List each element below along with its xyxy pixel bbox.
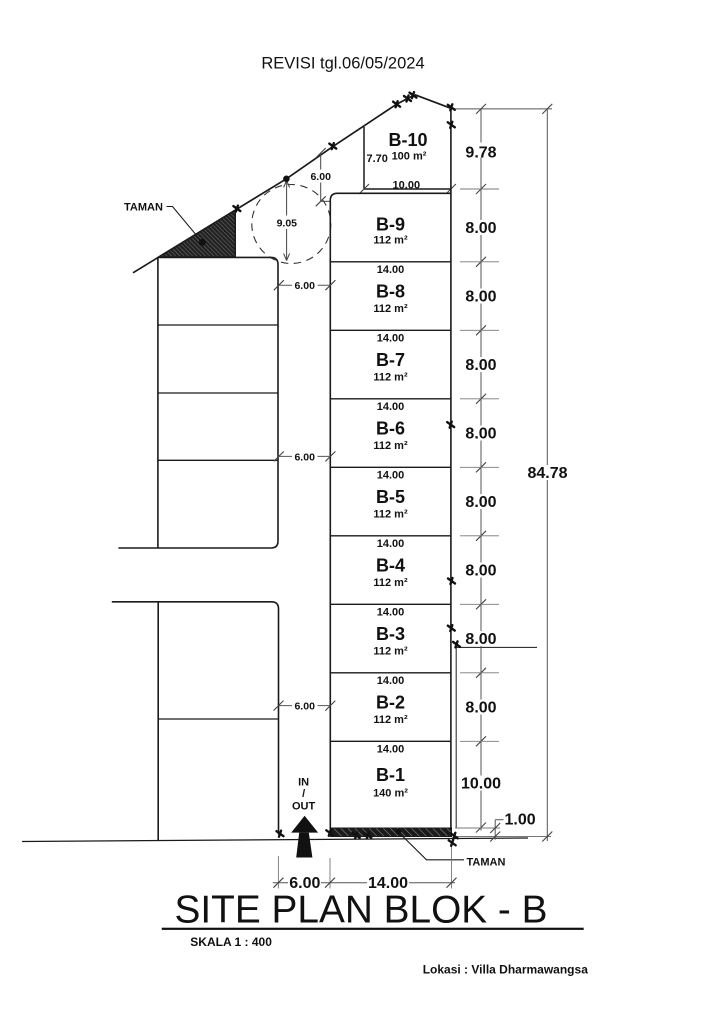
- svg-text:B-4: B-4: [376, 555, 405, 575]
- svg-text:6.00: 6.00: [310, 171, 331, 183]
- svg-text:9.78: 9.78: [465, 145, 496, 162]
- svg-text:TAMAN: TAMAN: [467, 857, 506, 869]
- svg-text:9.05: 9.05: [277, 218, 298, 230]
- svg-text:B-2: B-2: [376, 692, 405, 712]
- svg-text:112 m²: 112 m²: [373, 714, 408, 726]
- svg-text:REVISI tgl.06/05/2024: REVISI tgl.06/05/2024: [261, 55, 424, 73]
- svg-text:6.00: 6.00: [294, 701, 315, 713]
- svg-text:OUT: OUT: [292, 801, 316, 813]
- svg-text:TAMAN: TAMAN: [124, 202, 163, 214]
- svg-text:7.70: 7.70: [367, 153, 388, 165]
- svg-text:8.00: 8.00: [465, 494, 496, 511]
- svg-text:14.00: 14.00: [377, 469, 405, 481]
- svg-text:100 m²: 100 m²: [392, 151, 427, 163]
- svg-text:14.00: 14.00: [377, 606, 405, 618]
- svg-text:10.00: 10.00: [393, 179, 421, 191]
- svg-text:14.00: 14.00: [377, 675, 405, 687]
- svg-text:B-9: B-9: [376, 215, 405, 235]
- svg-text:8.00: 8.00: [465, 289, 496, 306]
- svg-text:B-8: B-8: [376, 281, 405, 301]
- svg-text:B-1: B-1: [376, 765, 405, 785]
- svg-text:112 m²: 112 m²: [373, 372, 408, 384]
- svg-text:6.00: 6.00: [294, 451, 315, 463]
- svg-text:140 m²: 140 m²: [373, 788, 408, 800]
- svg-text:14.00: 14.00: [377, 401, 405, 413]
- svg-text:112 m²: 112 m²: [373, 303, 408, 315]
- svg-text:8.00: 8.00: [465, 357, 496, 374]
- svg-text:14.00: 14.00: [377, 264, 405, 276]
- svg-text:IN: IN: [298, 777, 309, 789]
- svg-text:112 m²: 112 m²: [373, 577, 408, 589]
- svg-text:8.00: 8.00: [465, 426, 496, 443]
- svg-text:B-7: B-7: [376, 350, 405, 370]
- svg-text:14.00: 14.00: [377, 743, 405, 755]
- svg-text:/: /: [302, 788, 305, 800]
- svg-text:1.00: 1.00: [505, 812, 536, 829]
- svg-text:14.00: 14.00: [377, 538, 405, 550]
- svg-text:8.00: 8.00: [465, 700, 496, 717]
- svg-text:8.00: 8.00: [465, 631, 496, 648]
- svg-text:6.00: 6.00: [294, 280, 315, 292]
- svg-text:14.00: 14.00: [377, 332, 405, 344]
- svg-text:B-5: B-5: [376, 487, 405, 507]
- svg-text:B-3: B-3: [376, 624, 405, 644]
- svg-text:10.00: 10.00: [461, 776, 501, 793]
- svg-text:8.00: 8.00: [465, 563, 496, 580]
- svg-text:84.78: 84.78: [527, 465, 567, 482]
- svg-text:B-10: B-10: [388, 130, 427, 150]
- svg-text:112 m²: 112 m²: [373, 646, 408, 658]
- svg-text:112 m²: 112 m²: [373, 440, 408, 452]
- svg-text:Lokasi : Villa Dharmawangsa: Lokasi : Villa Dharmawangsa: [423, 963, 589, 977]
- svg-text:112 m²: 112 m²: [373, 234, 408, 246]
- svg-text:SITE PLAN BLOK - B: SITE PLAN BLOK - B: [174, 889, 547, 932]
- svg-text:112 m²: 112 m²: [373, 509, 408, 521]
- svg-text:B-6: B-6: [376, 418, 405, 438]
- svg-text:SKALA 1 : 400: SKALA 1 : 400: [190, 935, 272, 949]
- svg-text:8.00: 8.00: [465, 220, 496, 237]
